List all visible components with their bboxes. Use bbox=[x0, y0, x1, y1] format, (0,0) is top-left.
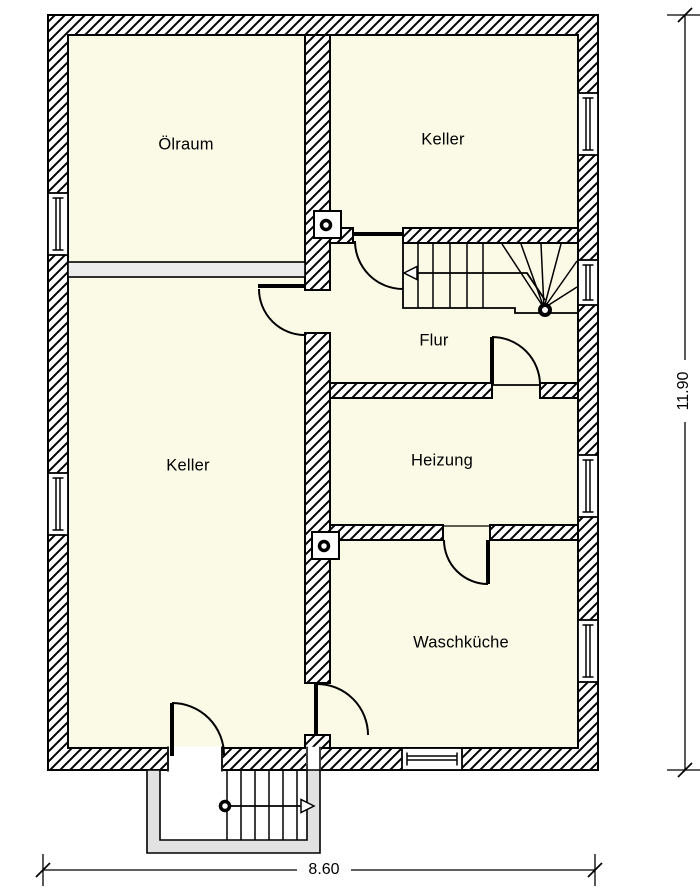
shaft-wall-channel bbox=[306, 747, 321, 772]
window-waschkueche-right bbox=[578, 620, 598, 682]
exterior-stair-walls bbox=[147, 770, 320, 853]
window-stair-right bbox=[578, 260, 598, 305]
window-keller-right bbox=[578, 93, 598, 155]
partition-wall bbox=[68, 262, 305, 277]
room-label-oelraum: Ölraum bbox=[158, 136, 213, 155]
window-keller-left bbox=[48, 473, 68, 535]
flue-symbol-top bbox=[314, 211, 341, 238]
room-label-keller-top: Keller bbox=[421, 131, 464, 150]
exterior-staircase bbox=[147, 770, 320, 853]
room-label-flur: Flur bbox=[419, 332, 448, 351]
floor-plan-drawing bbox=[0, 0, 700, 887]
room-label-heizung: Heizung bbox=[411, 452, 473, 471]
stair-newel-circle bbox=[540, 305, 550, 315]
window-heizung-right bbox=[578, 455, 598, 517]
window-waschkueche-bottom bbox=[402, 748, 462, 770]
dimension-width-label: 8.60 bbox=[308, 861, 339, 879]
room-label-keller-left: Keller bbox=[166, 457, 209, 476]
flue-symbol-middle bbox=[312, 532, 339, 559]
room-label-waschkueche: Waschküche bbox=[413, 634, 509, 653]
exterior-stair-start-circle bbox=[221, 802, 230, 811]
dimension-height-label: 11.90 bbox=[675, 372, 693, 411]
floor-plan: Ölraum Keller Flur Heizung Keller Waschk… bbox=[0, 0, 700, 887]
exterior-door-opening bbox=[167, 747, 223, 772]
window-oelraum-left bbox=[48, 193, 68, 255]
